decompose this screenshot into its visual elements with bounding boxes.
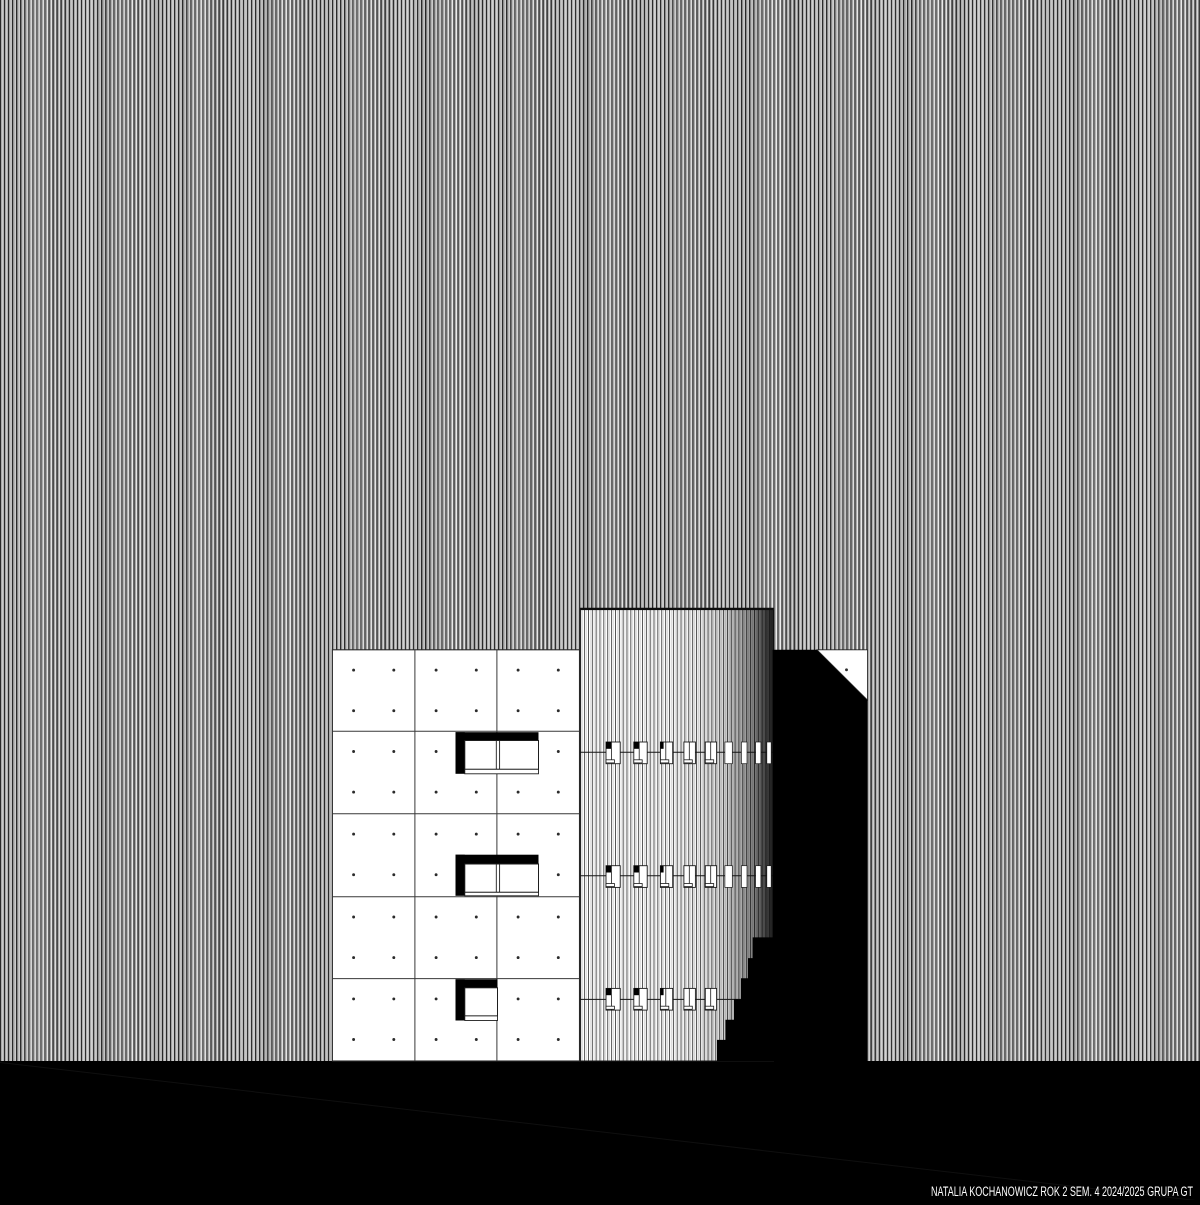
svg-text:NATALIA KOCHANOWICZ ROK 2 SEM.: NATALIA KOCHANOWICZ ROK 2 SEM. 4 2024/20… bbox=[931, 1184, 1193, 1199]
